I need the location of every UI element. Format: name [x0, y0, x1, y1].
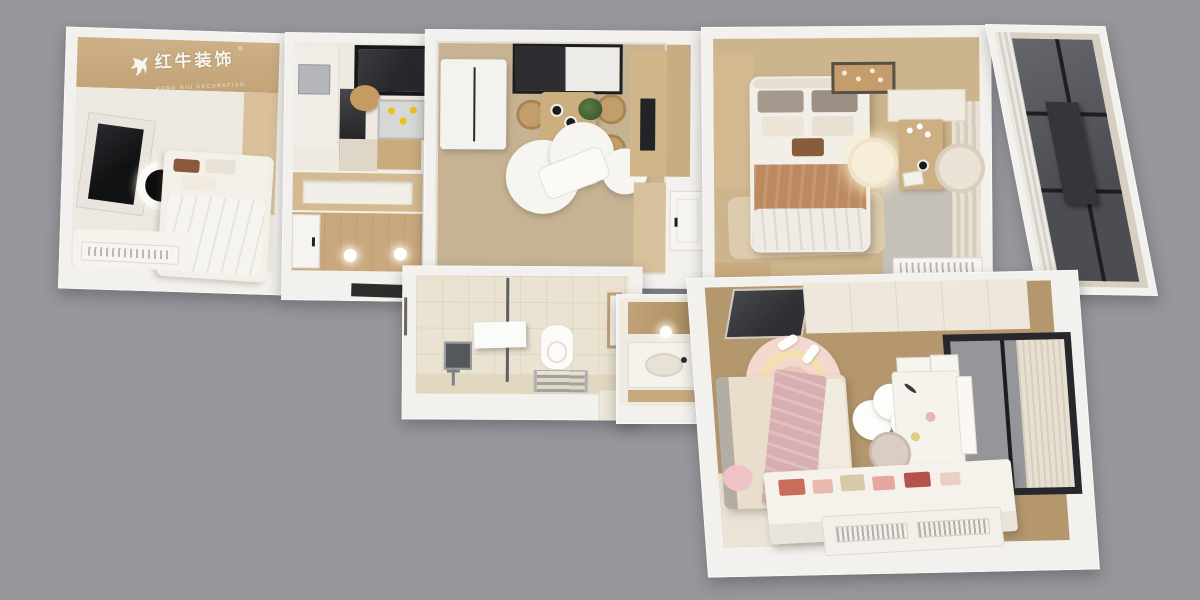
desk-item	[911, 432, 921, 441]
room-kids-bedroom	[686, 270, 1100, 578]
storage-cabinet	[803, 279, 1031, 334]
toy-red	[904, 471, 932, 487]
room-kitchen-entry	[281, 32, 435, 302]
pillow-accent-brown	[792, 138, 824, 156]
wall-cabinet	[887, 89, 965, 122]
ceiling-spotlight	[344, 249, 357, 262]
tv-niche	[640, 99, 655, 151]
bathroom-floor-strip	[416, 373, 628, 394]
room-master-bedroom	[701, 25, 993, 299]
bull-logo-icon	[125, 54, 151, 85]
floorplan-render: 红牛装饰 ® HONG NIU DECORATION	[0, 0, 1200, 600]
wood-counter	[377, 139, 421, 170]
tv-screen	[88, 123, 144, 205]
wall-cabinet	[298, 64, 330, 94]
wall-light	[660, 326, 672, 338]
window-curtain	[1016, 339, 1075, 488]
pillow-gray	[757, 90, 803, 112]
recessed-shelf	[302, 179, 412, 205]
dish-yellow	[388, 107, 395, 114]
pillow-cream	[812, 116, 854, 136]
round-pendant-lamp	[848, 138, 898, 188]
toy-pink	[812, 479, 833, 494]
entry-hall-floor	[292, 212, 423, 272]
smoked-glass-wardrobe	[724, 287, 811, 339]
entry-shelf-band	[292, 172, 423, 212]
toy-red	[778, 479, 806, 496]
table-plant	[578, 98, 602, 120]
kitchen-sink	[377, 99, 426, 140]
towel-radiator	[534, 370, 588, 392]
cutting-board	[350, 85, 380, 111]
toilet	[540, 324, 574, 370]
flower	[907, 128, 913, 134]
entry-door	[292, 214, 321, 268]
pillow-cream	[182, 175, 217, 191]
bathroom-door-slit	[404, 297, 407, 335]
pillow-cream	[205, 159, 236, 175]
radiator-unit	[821, 506, 1005, 556]
armchair	[935, 143, 985, 193]
basin	[645, 353, 683, 377]
flower	[917, 123, 923, 129]
toy-pink	[940, 472, 961, 486]
brand-name-cn: 红牛装饰	[154, 51, 235, 71]
decorative-ceiling-lamp	[831, 62, 895, 94]
dish-yellow	[410, 107, 417, 114]
wood-plinth	[628, 390, 700, 402]
pillow-brown	[173, 158, 200, 173]
tap	[681, 357, 687, 363]
cup	[550, 104, 563, 117]
pass-through-window	[512, 44, 622, 95]
toy-pink	[872, 475, 895, 490]
ceiling-spotlight	[394, 248, 407, 261]
desk-item	[925, 412, 936, 422]
kitchen-floor	[293, 42, 425, 172]
wardrobe	[713, 55, 754, 189]
kitchen-cabinets	[293, 46, 339, 147]
shower-screen	[474, 321, 527, 349]
duvet-fold	[752, 208, 868, 251]
pencil	[904, 382, 918, 394]
books	[902, 170, 924, 187]
toy-tan	[840, 474, 866, 491]
dish-yellow	[400, 118, 407, 125]
vanity-mirror	[444, 342, 472, 370]
interior-door	[669, 191, 705, 251]
grille	[835, 523, 908, 543]
corner-cabinet	[666, 45, 691, 177]
room-dining	[423, 29, 713, 289]
grille	[917, 518, 990, 538]
flower	[925, 131, 931, 137]
registered-mark: ®	[238, 46, 243, 52]
room-bathroom	[402, 265, 643, 420]
room-balcony	[985, 24, 1158, 296]
brand-watermark: 红牛装饰 ® HONG NIU DECORATION	[125, 49, 277, 94]
lower-cabinet	[633, 182, 666, 272]
secondary-bedroom-floor	[71, 87, 279, 273]
pillow-cream	[762, 116, 804, 136]
kitchen-tile-floor	[339, 139, 377, 172]
door-handle	[312, 237, 315, 246]
refrigerator	[440, 59, 507, 149]
door-handle	[675, 218, 678, 227]
faucet	[452, 370, 455, 386]
